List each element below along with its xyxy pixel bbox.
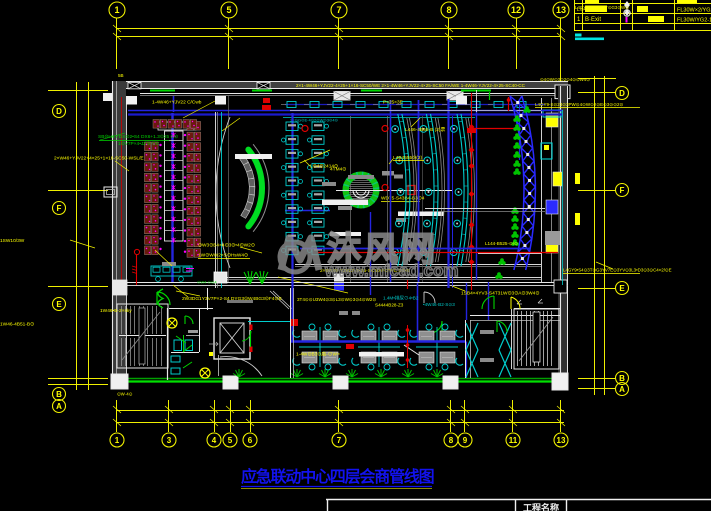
svg-text:L446-4B55-B (2)票: L446-4B55-B (2)票 xyxy=(405,127,445,133)
svg-text:1-4W⊙B3⊙店-⊙W×: 1-4W⊙B3⊙店-⊙W× xyxy=(296,351,340,358)
svg-text:•4W46·B2·S⊙3: •4W46·B2·S⊙3 xyxy=(423,302,455,307)
svg-text:A: A xyxy=(619,385,625,394)
svg-text:4TM4⊙: 4TM4⊙ xyxy=(330,167,346,173)
svg-text:F: F xyxy=(57,204,62,213)
svg-text:8: 8 xyxy=(446,5,451,15)
svg-text:3: 3 xyxy=(167,436,172,445)
svg-text:E: E xyxy=(56,300,62,309)
svg-text:www.mfcad.com: www.mfcad.com xyxy=(324,261,459,280)
svg-text:D: D xyxy=(619,89,625,98)
svg-text:1: 1 xyxy=(114,5,119,15)
svg-text:6: 6 xyxy=(248,436,253,445)
svg-text:3T4⊙⊙U3W4⊙3⊙L3⊙W⊙3⊙4⊙W2⊙: 3T4⊙⊙U3W4⊙3⊙L3⊙W⊙3⊙4⊙W2⊙ xyxy=(297,297,376,302)
svg-text:7: 7 xyxy=(336,5,341,15)
svg-text:2W3DG1Y3V7P×2-S4 DYG3⊙W4BG3⊙F4: 2W3DG1Y3V7P×2-S4 DYG3⊙W4BG3⊙F4⊙B xyxy=(182,296,282,302)
svg-text:F: F xyxy=(620,186,625,195)
svg-text:1W⊙WW2×S⊙HsW4⊙: 1W⊙WW2×S⊙HsW4⊙ xyxy=(198,253,248,259)
svg-text:7: 7 xyxy=(337,436,342,445)
svg-text:11: 11 xyxy=(509,436,518,445)
svg-text:L4B4555⊙(2): L4B4555⊙(2) xyxy=(393,155,422,161)
svg-text:1.4M•排尿⊙4•B2: 1.4M•排尿⊙4•B2 xyxy=(383,295,419,302)
svg-text:13: 13 xyxy=(556,5,566,15)
svg-text:⊙W3⊙B4×4⊙3⊙•4⊙W2⊙: ⊙W3⊙B4×4⊙3⊙•4⊙W2⊙ xyxy=(198,242,255,248)
svg-text:L4GY9—S×E⊙T⊙G3⊙W⊙: L4GY9—S×E⊙T⊙G3⊙W⊙ xyxy=(575,5,629,10)
svg-text:5: 5 xyxy=(228,436,233,445)
svg-text:1-4W46+YJV22 C/Cwb: 1-4W46+YJV22 C/Cwb xyxy=(152,100,202,106)
svg-text:L4GY9•S4⊙3T⊙G3YV7E⊙3YV⊙3L3•D3⊙: L4GY9•S4⊙3T⊙G3YV7E⊙3YV⊙3L3•D3⊙3⊙C4×2/⊙E xyxy=(563,268,672,273)
svg-text:9: 9 xyxy=(463,436,468,445)
svg-text:8: 8 xyxy=(449,436,454,445)
svg-text:D: D xyxy=(56,107,62,116)
svg-text:B: B xyxy=(619,374,625,383)
svg-text:应急联动中心四层会商管线图: 应急联动中心四层会商管线图 xyxy=(241,467,434,486)
svg-text:4: 4 xyxy=(212,436,217,445)
svg-text:B: B xyxy=(56,390,62,399)
svg-text:E: E xyxy=(619,284,625,293)
svg-text:工程名称: 工程名称 xyxy=(523,502,559,511)
svg-text:FL30W/YG2-1 S: FL30W/YG2-1 S xyxy=(677,18,711,24)
svg-text:13: 13 xyxy=(557,436,566,445)
svg-text:2×1-4W46+YJV22-4×25+1×16-SC50/: 2×1-4W46+YJV22-4×25+1×16-SC50/WE 2×1-4W4… xyxy=(296,83,526,88)
svg-text:A: A xyxy=(56,402,62,411)
svg-text:2×W46+YJV22+4×25+1×16-SC50-WSL: 2×W46+YJV22+4×25+1×16-SC50-WSL/E xyxy=(54,155,144,161)
svg-text:⊙W4·⊙⊙4: ⊙W4·⊙⊙4 xyxy=(197,280,217,285)
svg-text:1W46•B-2×sky: 1W46•B-2×sky xyxy=(100,308,132,314)
svg-text:L4GY9-S⊙23⊙3PW⊙4⊙W⊙2⊙E⊙3⊙⊙2⊙: L4GY9-S⊙23⊙3PW⊙4⊙W⊙2⊙E⊙3⊙⊙2⊙ xyxy=(535,102,623,107)
svg-text:5: 5 xyxy=(226,5,231,15)
svg-text:1⊙V7P×4•JZ⊙-⊙C: 1⊙V7P×4•JZ⊙-⊙C xyxy=(118,141,160,147)
svg-text:FL30W×2/YG2-1: FL30W×2/YG2-1 xyxy=(677,8,711,14)
svg-text:B·Exit: B·Exit xyxy=(585,17,601,23)
svg-text:1SW10/3W: 1SW10/3W xyxy=(0,238,25,244)
svg-text:1: 1 xyxy=(115,436,120,445)
svg-text:1W46-4B51-B⊙: 1W46-4B51-B⊙ xyxy=(0,322,34,328)
svg-text:12: 12 xyxy=(511,5,521,15)
svg-text:P≈25×3E: P≈25×3E xyxy=(383,100,403,106)
svg-text:S4444B28-Z3: S4444B28-Z3 xyxy=(375,302,404,307)
svg-text:5B: 5B xyxy=(118,73,124,78)
svg-text:⊙4⊙W⊙3⊙2⊙4⊙⊙W4⊙: ⊙4⊙W⊙3⊙2⊙4⊙⊙W4⊙ xyxy=(540,77,590,82)
svg-text:1SB4×4YV3-S4T31W⊙3⊙A⊙3W4⊙: 1SB4×4YV3-S4T31W⊙3⊙A⊙3W4⊙ xyxy=(461,290,539,296)
svg-text:L144-B525-⊙/⊙: L144-B525-⊙/⊙ xyxy=(485,241,518,246)
svg-text:⊙W·4⊙: ⊙W·4⊙ xyxy=(117,392,132,397)
